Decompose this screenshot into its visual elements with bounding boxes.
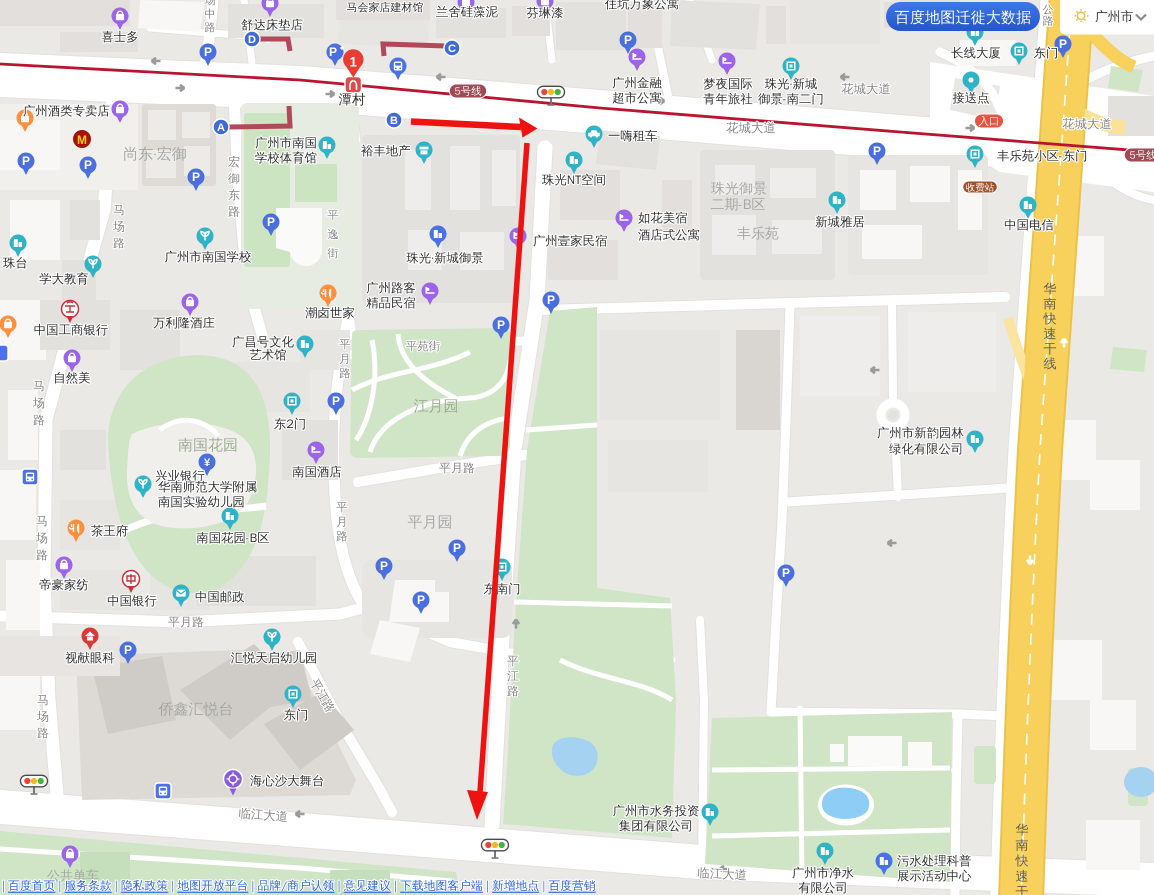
svg-text:B: B bbox=[390, 115, 398, 127]
svg-text:P: P bbox=[84, 158, 92, 172]
svg-text:P: P bbox=[204, 45, 212, 59]
svg-text:1: 1 bbox=[350, 55, 358, 70]
svg-text:P: P bbox=[22, 154, 30, 168]
svg-text:P: P bbox=[624, 33, 632, 47]
svg-text:M: M bbox=[77, 133, 87, 147]
svg-text:P: P bbox=[1059, 37, 1067, 51]
svg-text:P: P bbox=[547, 293, 555, 307]
svg-text:P: P bbox=[332, 394, 340, 408]
svg-text:P: P bbox=[497, 318, 505, 332]
svg-text:P: P bbox=[329, 45, 337, 59]
svg-text:P: P bbox=[453, 541, 461, 555]
svg-text:A: A bbox=[217, 122, 225, 134]
svg-text:P: P bbox=[267, 215, 275, 229]
svg-text:P: P bbox=[192, 170, 200, 184]
svg-text:P: P bbox=[417, 593, 425, 607]
svg-text:D: D bbox=[248, 34, 256, 46]
svg-text:P: P bbox=[380, 559, 388, 573]
svg-text:¥: ¥ bbox=[204, 457, 211, 469]
svg-text:C: C bbox=[448, 43, 456, 55]
svg-text:P: P bbox=[873, 144, 881, 158]
svg-text:P: P bbox=[124, 643, 132, 657]
svg-text:P: P bbox=[782, 566, 790, 580]
